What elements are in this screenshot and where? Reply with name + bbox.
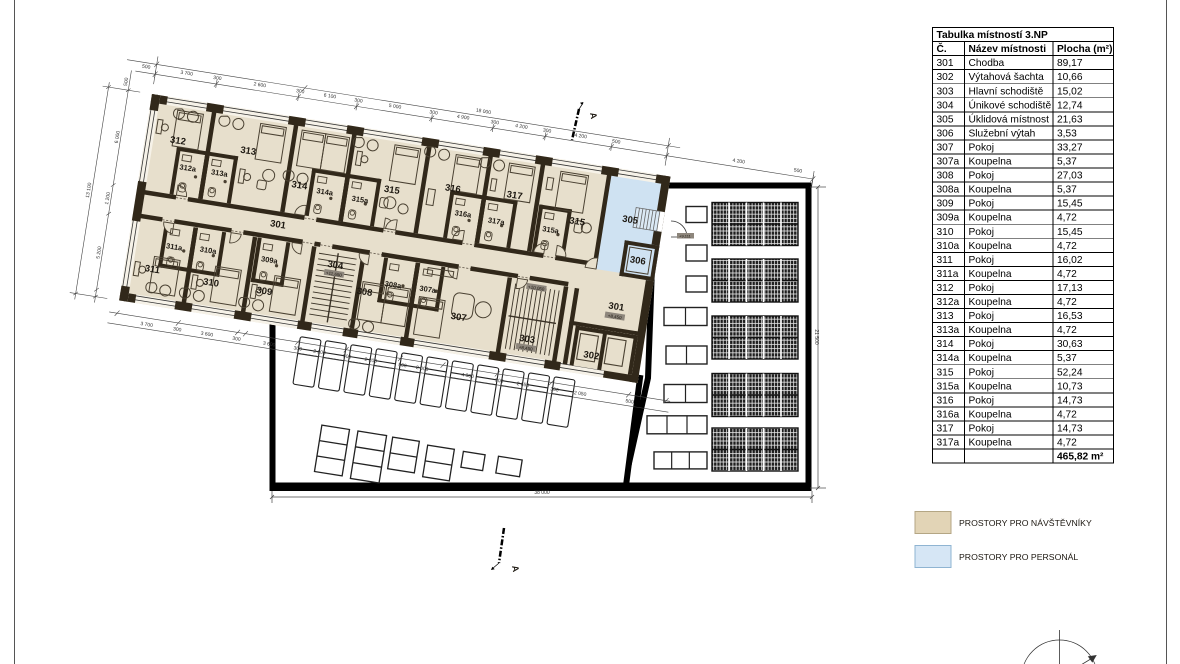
svg-text:14,73: 14,73 (1057, 423, 1083, 434)
svg-text:317a: 317a (937, 438, 960, 449)
svg-text:10,73: 10,73 (1057, 381, 1083, 392)
svg-text:Pokoj: Pokoj (969, 395, 994, 406)
svg-text:4 200: 4 200 (732, 158, 746, 166)
svg-text:465,82 m²: 465,82 m² (1057, 452, 1104, 463)
svg-text:308: 308 (937, 171, 954, 182)
svg-text:311: 311 (937, 255, 954, 266)
svg-text:Koupelna: Koupelna (969, 353, 1012, 364)
svg-text:4 200: 4 200 (515, 123, 529, 131)
svg-text:4,72: 4,72 (1057, 409, 1077, 420)
svg-text:33,27: 33,27 (1057, 142, 1083, 153)
svg-text:Pokoj: Pokoj (969, 339, 994, 350)
svg-text:3 600: 3 600 (200, 331, 214, 339)
svg-text:6 000: 6 000 (114, 130, 122, 144)
svg-text:3 700: 3 700 (180, 70, 194, 78)
svg-text:Koupelna: Koupelna (969, 241, 1012, 252)
svg-text:52,24: 52,24 (1057, 367, 1083, 378)
svg-text:+9,111: +9,111 (679, 234, 692, 239)
svg-text:300: 300 (296, 88, 305, 95)
svg-text:15,02: 15,02 (1057, 86, 1083, 97)
svg-text:5 000: 5 000 (388, 103, 402, 111)
svg-text:4,72: 4,72 (1057, 241, 1077, 252)
svg-text:300: 300 (490, 119, 499, 126)
svg-text:316: 316 (937, 395, 954, 406)
svg-text:314a: 314a (937, 353, 960, 364)
svg-text:Koupelna: Koupelna (969, 381, 1012, 392)
svg-text:15,45: 15,45 (1057, 227, 1083, 238)
svg-text:300: 300 (542, 127, 551, 134)
svg-text:308a: 308a (937, 185, 960, 196)
svg-text:300: 300 (173, 326, 182, 333)
svg-text:500: 500 (142, 64, 151, 71)
svg-text:301: 301 (937, 58, 954, 69)
svg-text:Koupelna: Koupelna (969, 438, 1012, 449)
svg-text:313: 313 (937, 311, 954, 322)
svg-text:Úklidová místnost: Úklidová místnost (969, 112, 1050, 125)
svg-text:Koupelna: Koupelna (969, 185, 1012, 196)
svg-text:A: A (510, 565, 521, 574)
svg-text:PROSTORY PRO PERSONÁL: PROSTORY PRO PERSONÁL (959, 552, 1078, 562)
svg-text:315: 315 (937, 367, 954, 378)
svg-text:Pokoj: Pokoj (969, 227, 994, 238)
svg-text:16,02: 16,02 (1057, 255, 1083, 266)
svg-text:313a: 313a (937, 325, 960, 336)
svg-text:Tabulka místností 3.NP: Tabulka místností 3.NP (937, 30, 1049, 41)
svg-text:303: 303 (937, 86, 954, 97)
svg-text:Koupelna: Koupelna (969, 157, 1012, 168)
svg-text:317: 317 (937, 423, 954, 434)
svg-text:13 100: 13 100 (85, 182, 93, 198)
svg-text:302: 302 (937, 72, 954, 83)
svg-text:500: 500 (612, 138, 621, 145)
svg-text:300: 300 (232, 336, 241, 343)
svg-text:Pokoj: Pokoj (969, 283, 994, 294)
svg-text:16,53: 16,53 (1057, 311, 1083, 322)
svg-text:Pokoj: Pokoj (969, 311, 994, 322)
svg-text:4,72: 4,72 (1057, 297, 1077, 308)
svg-text:Chodba: Chodba (969, 58, 1005, 69)
svg-text:311a: 311a (937, 269, 959, 280)
svg-text:315a: 315a (937, 381, 960, 392)
svg-text:300: 300 (354, 97, 363, 104)
svg-text:27,03: 27,03 (1057, 171, 1083, 182)
svg-text:309a: 309a (937, 213, 960, 224)
svg-text:4,72: 4,72 (1057, 325, 1077, 336)
svg-text:6 100: 6 100 (323, 93, 337, 101)
svg-text:5,37: 5,37 (1057, 157, 1077, 168)
svg-text:5,37: 5,37 (1057, 353, 1077, 364)
svg-text:14,73: 14,73 (1057, 395, 1083, 406)
svg-text:5 200: 5 200 (95, 246, 103, 260)
svg-text:Koupelna: Koupelna (969, 297, 1012, 308)
svg-text:300: 300 (213, 75, 222, 82)
svg-text:306: 306 (937, 128, 954, 139)
svg-text:Koupelna: Koupelna (969, 269, 1012, 280)
svg-text:300: 300 (429, 109, 438, 116)
svg-text:500: 500 (793, 167, 802, 174)
svg-text:15,45: 15,45 (1057, 199, 1083, 210)
svg-text:5,37: 5,37 (1057, 185, 1077, 196)
svg-text:Výtahová šachta: Výtahová šachta (969, 72, 1045, 83)
svg-text:310: 310 (937, 227, 954, 238)
svg-text:3 600: 3 600 (262, 341, 276, 349)
svg-text:304: 304 (937, 100, 954, 111)
svg-text:4,72: 4,72 (1057, 438, 1077, 449)
svg-text:4 900: 4 900 (456, 114, 470, 122)
svg-text:21 500: 21 500 (813, 329, 819, 345)
svg-text:Pokoj: Pokoj (969, 142, 994, 153)
svg-text:312: 312 (937, 283, 954, 294)
svg-text:30,63: 30,63 (1057, 339, 1083, 350)
svg-text:12,74: 12,74 (1057, 100, 1083, 111)
svg-text:Č.: Č. (937, 42, 947, 55)
svg-text:312a: 312a (937, 297, 960, 308)
svg-text:Pokoj: Pokoj (969, 171, 994, 182)
svg-text:38 000: 38 000 (534, 490, 550, 496)
svg-text:4,72: 4,72 (1057, 213, 1077, 224)
svg-text:Koupelna: Koupelna (969, 213, 1012, 224)
svg-text:Koupelna: Koupelna (969, 409, 1012, 420)
svg-text:3,53: 3,53 (1057, 128, 1077, 139)
svg-text:10,66: 10,66 (1057, 72, 1083, 83)
svg-text:316a: 316a (937, 409, 960, 420)
svg-text:310a: 310a (937, 241, 960, 252)
svg-text:307a: 307a (937, 157, 960, 168)
svg-text:17,13: 17,13 (1057, 283, 1083, 294)
svg-text:Únikové schodiště: Únikové schodiště (969, 98, 1052, 111)
svg-text:4 200: 4 200 (574, 133, 588, 141)
svg-text:4,72: 4,72 (1057, 269, 1077, 280)
svg-text:309: 309 (937, 199, 954, 210)
svg-text:Pokoj: Pokoj (969, 423, 994, 434)
svg-text:3 700: 3 700 (140, 321, 154, 329)
svg-text:2 600: 2 600 (253, 81, 267, 89)
svg-text:Služební výtah: Služební výtah (969, 128, 1036, 139)
svg-text:314: 314 (937, 339, 954, 350)
svg-text:Koupelna: Koupelna (969, 325, 1012, 336)
svg-text:21,63: 21,63 (1057, 114, 1083, 125)
svg-text:Pokoj: Pokoj (969, 199, 994, 210)
svg-text:A: A (588, 112, 599, 121)
svg-text:1 200: 1 200 (104, 192, 112, 206)
svg-text:Pokoj: Pokoj (969, 367, 994, 378)
svg-text:307: 307 (937, 142, 954, 153)
svg-text:Název místnosti: Název místnosti (969, 44, 1047, 55)
svg-text:18 000: 18 000 (475, 108, 491, 116)
svg-text:PROSTORY PRO NÁVŠTĚVNÍKY: PROSTORY PRO NÁVŠTĚVNÍKY (959, 518, 1092, 528)
svg-text:Pokoj: Pokoj (969, 255, 994, 266)
svg-text:Plocha (m²): Plocha (m²) (1057, 44, 1112, 55)
svg-text:89,17: 89,17 (1057, 58, 1083, 69)
svg-text:Hlavní schodiště: Hlavní schodiště (969, 86, 1044, 97)
svg-text:305: 305 (937, 114, 954, 125)
